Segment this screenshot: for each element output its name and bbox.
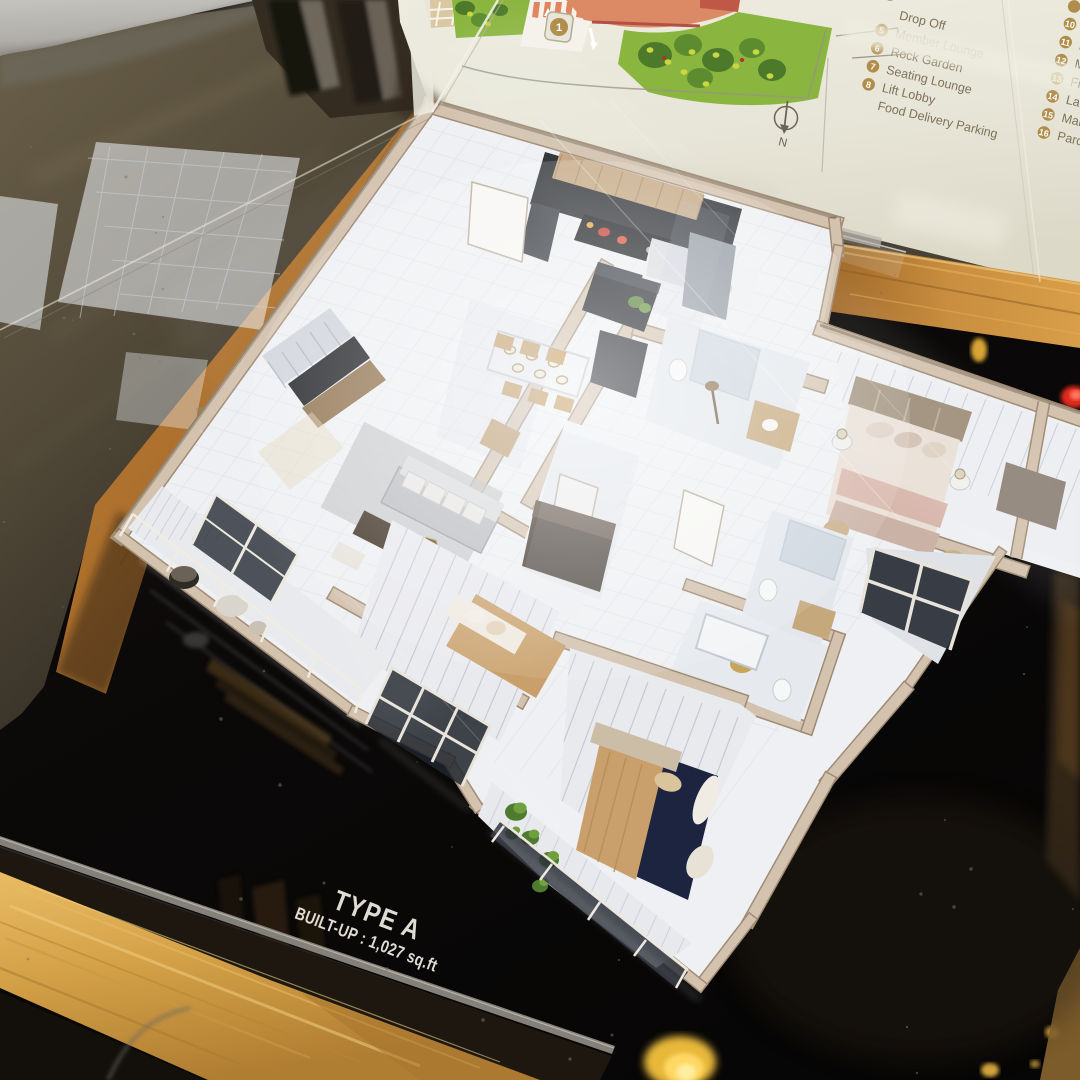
- svg-text:1: 1: [556, 22, 562, 34]
